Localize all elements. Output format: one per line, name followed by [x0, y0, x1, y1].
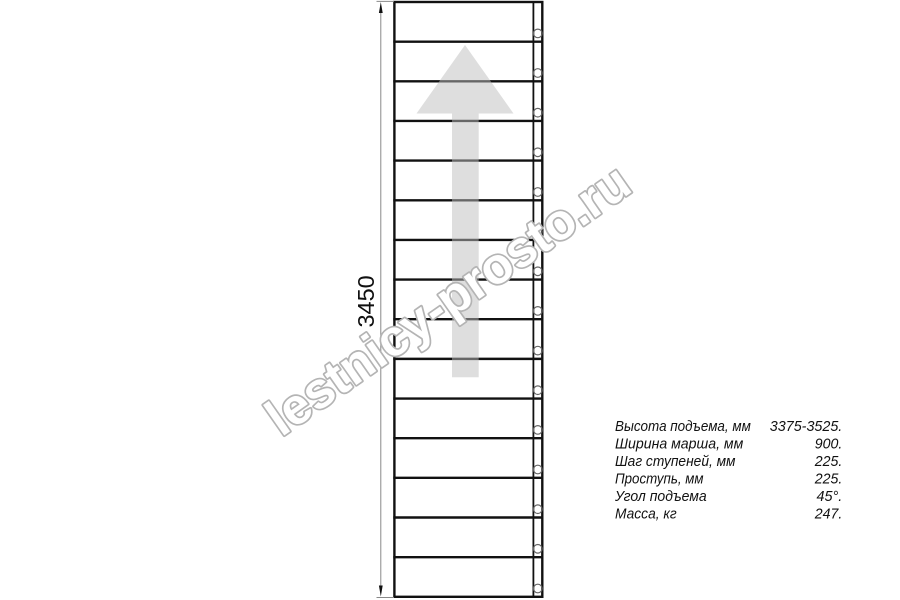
- svg-text:45°.: 45°.: [817, 488, 843, 505]
- svg-text:900.: 900.: [815, 436, 843, 453]
- svg-text:lestnicy-prosto.ru: lestnicy-prosto.ru: [255, 153, 641, 447]
- svg-text:Ширина марша, мм: Ширина марша, мм: [615, 436, 743, 453]
- svg-text:225.: 225.: [814, 453, 842, 470]
- svg-text:247.: 247.: [814, 505, 842, 522]
- svg-text:Угол подъема: Угол подъема: [614, 488, 707, 505]
- svg-text:225.: 225.: [814, 470, 842, 487]
- svg-text:3375-3525.: 3375-3525.: [770, 418, 843, 435]
- svg-text:Проступь, мм: Проступь, мм: [615, 470, 704, 487]
- svg-text:Шаг ступеней, мм: Шаг ступеней, мм: [615, 453, 736, 470]
- svg-text:Масса, кг: Масса, кг: [615, 505, 677, 522]
- svg-text:Высота подъема, мм: Высота подъема, мм: [615, 418, 751, 435]
